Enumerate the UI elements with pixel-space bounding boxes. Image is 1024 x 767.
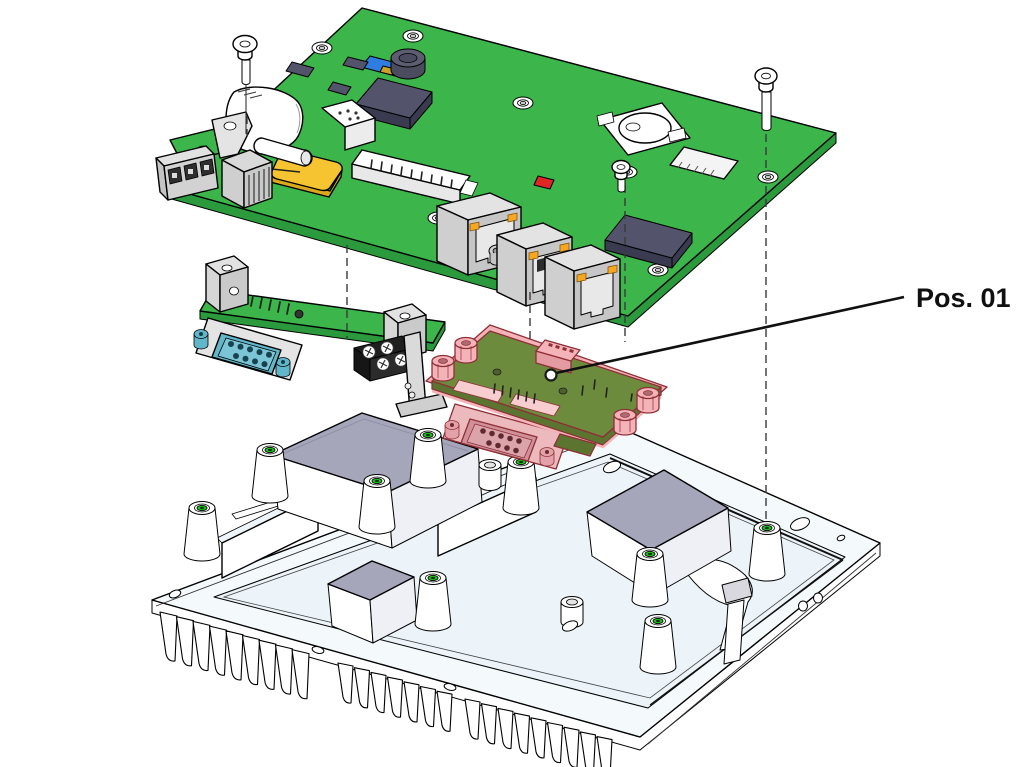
usb-connector [222, 150, 272, 208]
inductor [391, 49, 425, 79]
exploded-assembly-diagram: Pos. 01 [0, 0, 1024, 767]
rj45-port-3 [545, 245, 620, 329]
hex-standoff [455, 338, 477, 364]
jack-screw-right [276, 358, 290, 378]
serial-daughter-board [194, 256, 447, 417]
hex-standoff [637, 388, 659, 414]
callout-label: Pos. 01 [916, 283, 1011, 313]
callout-anchor-dot [546, 370, 557, 381]
mounting-bracket-left [206, 256, 248, 312]
hex-standoff [614, 410, 636, 436]
jack-screw-right [540, 448, 554, 467]
jack-screw-left [194, 330, 208, 350]
main-pcb [156, 8, 836, 329]
hex-standoff [432, 356, 454, 382]
heatsink-chassis [152, 413, 880, 767]
jack-screw-left [445, 421, 459, 440]
